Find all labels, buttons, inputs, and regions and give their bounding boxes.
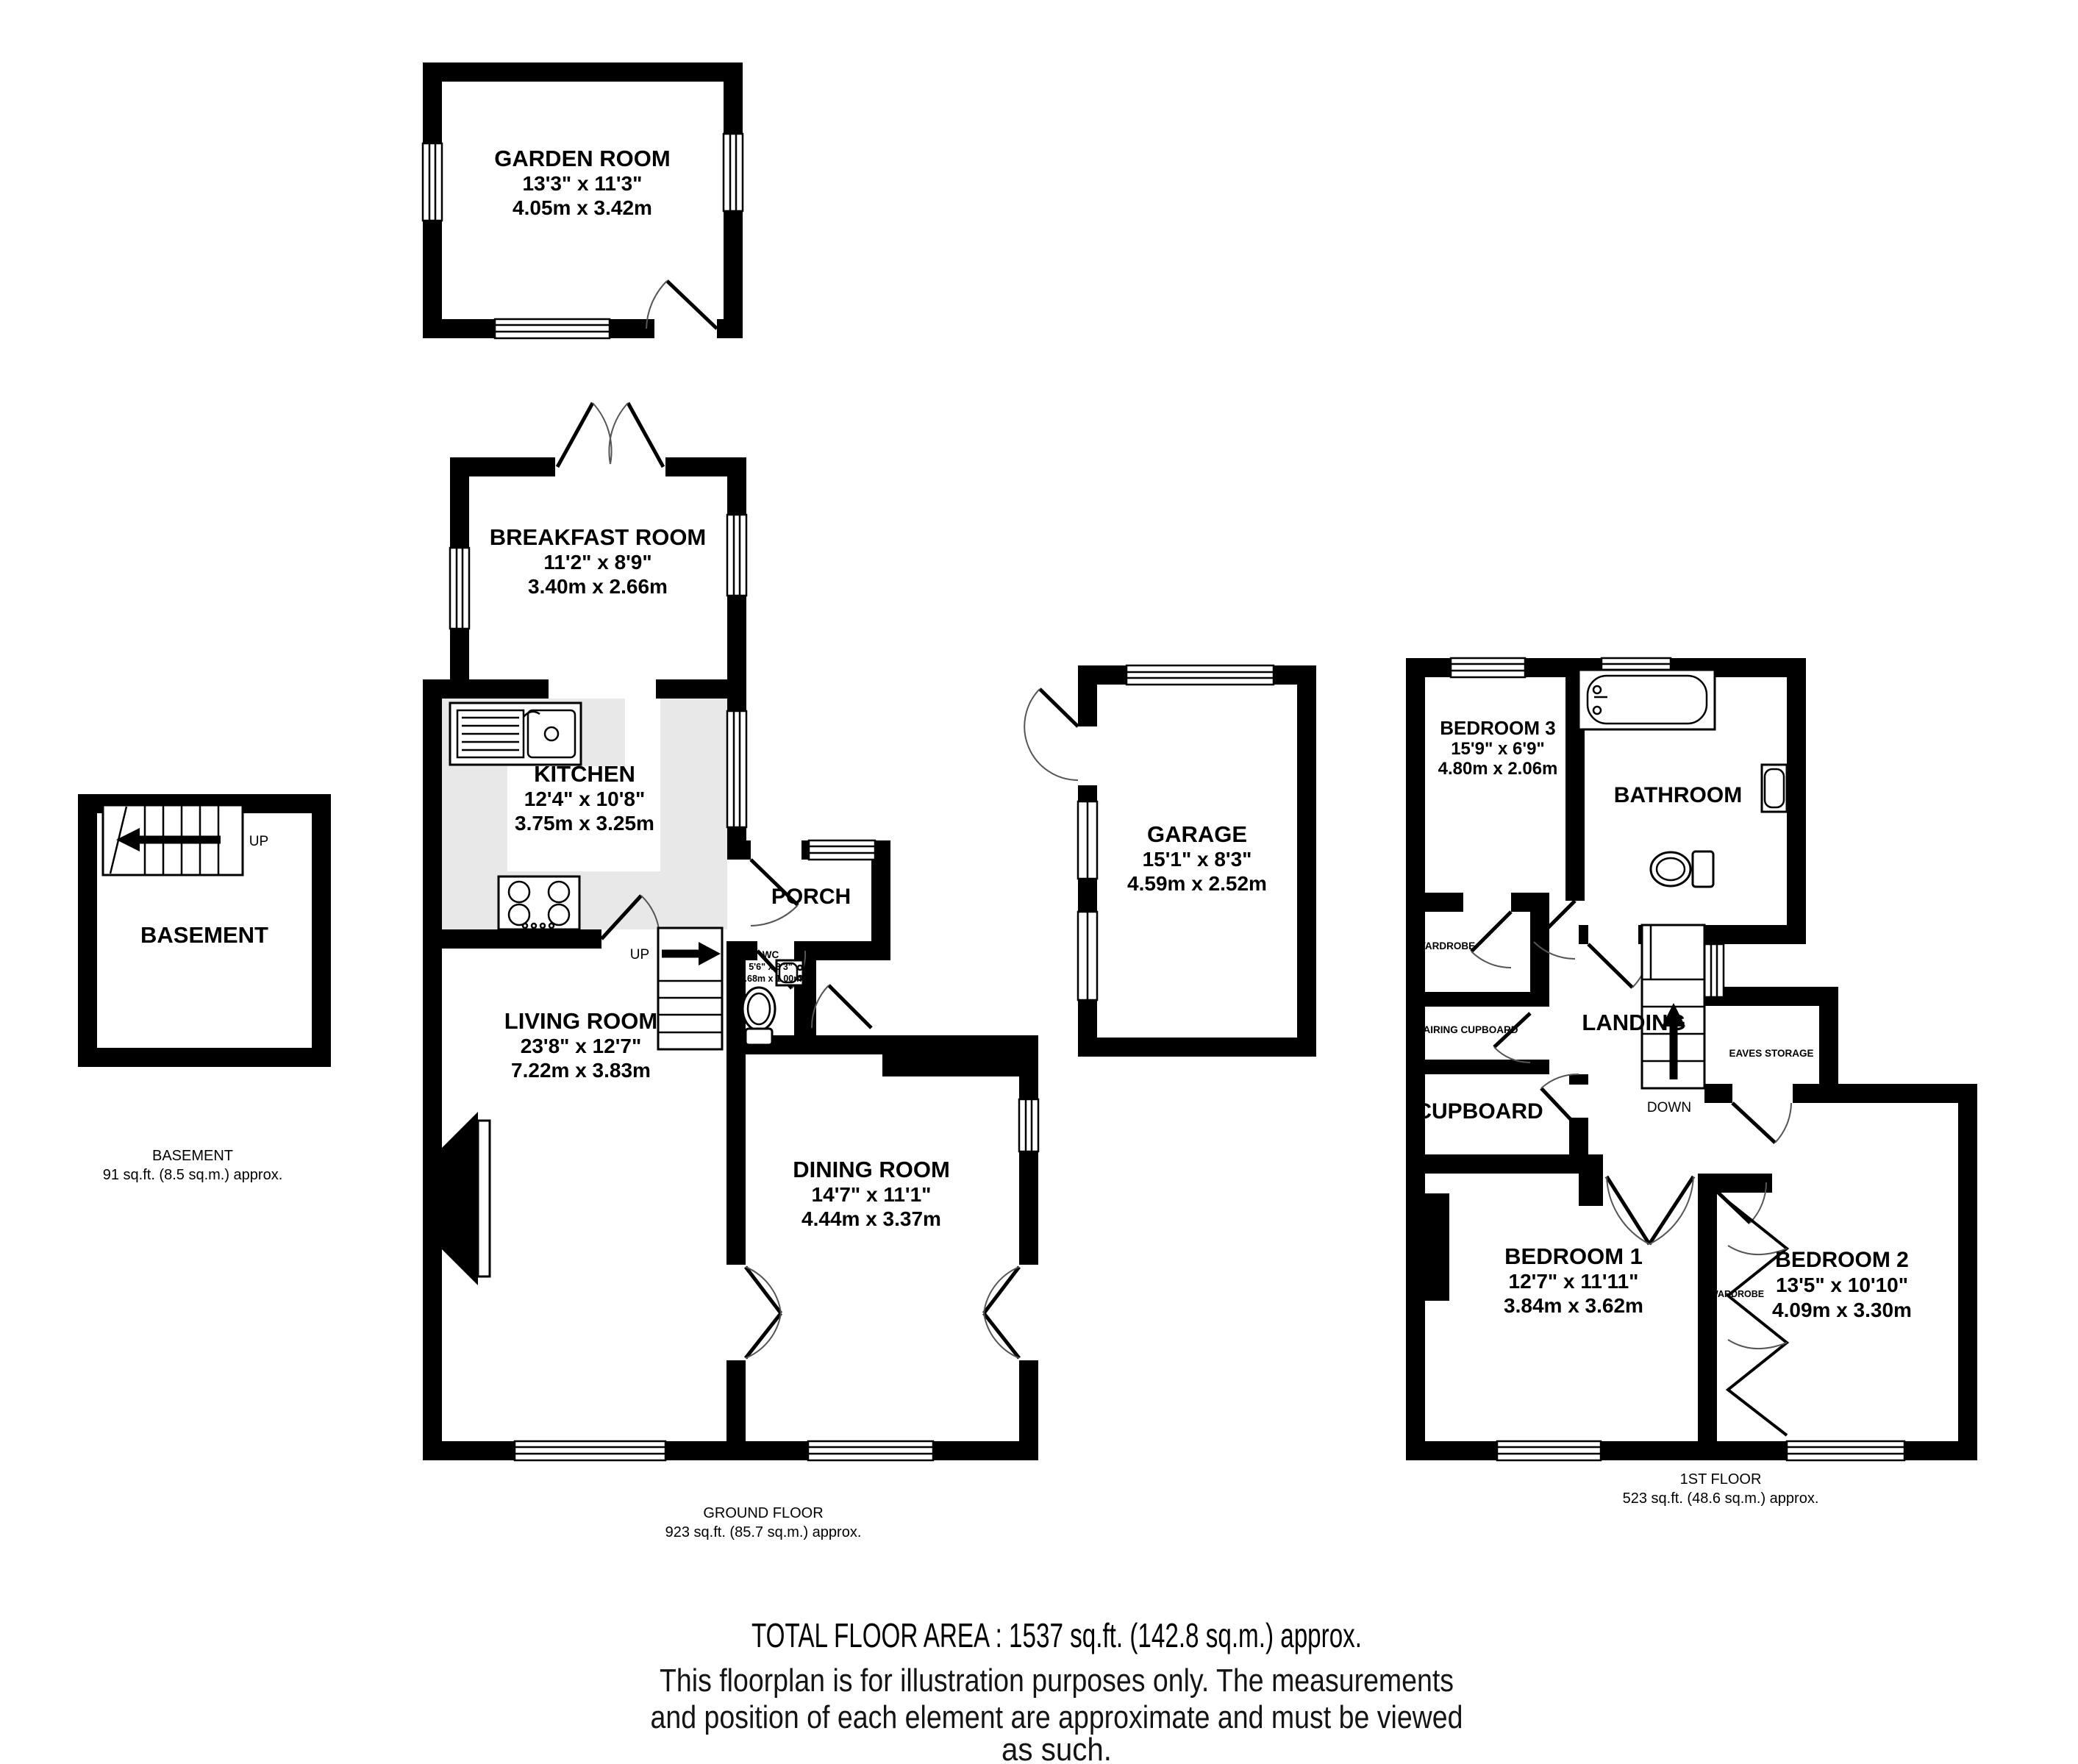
basement-caption-title: BASEMENT xyxy=(152,1148,233,1164)
basement-caption-area: 91 sq.ft. (8.5 sq.m.) approx. xyxy=(103,1167,283,1183)
window xyxy=(1451,658,1525,677)
wc-label: WC xyxy=(763,949,779,960)
wardrobe-door xyxy=(1471,912,1511,968)
eaves-storage-door xyxy=(1732,1103,1791,1143)
window xyxy=(809,840,875,860)
dining-room-imperial: 14'7" x 11'1" xyxy=(812,1183,932,1206)
bedroom2-metric: 4.09m x 3.30m xyxy=(1772,1299,1912,1321)
floorplan-drawing: GARDEN ROOM 13'3" x 11'3" 4.05m x 3.42m … xyxy=(0,0,2078,1764)
ground-floor: GARDEN ROOM 13'3" x 11'3" 4.05m x 3.42m … xyxy=(423,63,1038,1540)
airing-cupboard-door xyxy=(1494,1013,1530,1063)
bathroom-door xyxy=(1588,944,1650,988)
disclaimer-line3: as such. xyxy=(1001,1732,1112,1764)
first-stairs-down-label: DOWN xyxy=(1647,1100,1691,1115)
garden-room-label: GARDEN ROOM xyxy=(494,146,670,171)
wardrobe-bed3-label: WARDROBE xyxy=(1416,940,1475,951)
wardrobe-bed2-label: WARDROBE xyxy=(1710,1289,1764,1299)
bedroom3-label: BEDROOM 3 xyxy=(1440,717,1555,739)
basement-staircase xyxy=(103,805,243,875)
landing-label: LANDING xyxy=(1582,1010,1685,1035)
disclaimer-line1: This floorplan is for illustration purpo… xyxy=(660,1663,1454,1699)
dining-room-metric: 4.44m x 3.37m xyxy=(801,1207,941,1230)
floorplan-page: GARDEN ROOM 13'3" x 11'3" 4.05m x 3.42m … xyxy=(0,0,2078,1764)
garage-metric: 4.59m x 2.52m xyxy=(1127,872,1267,895)
cupboard-label: CUPBOARD xyxy=(1415,1099,1543,1124)
wc-imperial: 5'6" x 3'3" xyxy=(749,962,793,972)
first-floor-caption-area: 523 sq.ft. (48.6 sq.m.) approx. xyxy=(1623,1490,1819,1507)
wc-toilet xyxy=(743,988,775,1045)
bedroom3-imperial: 15'9" x 6'9" xyxy=(1451,739,1545,759)
first-floor: BEDROOM 3 15'9" x 6'9" 4.80m x 2.06m BAT… xyxy=(1406,658,1977,1507)
window xyxy=(1704,944,1724,997)
door xyxy=(646,281,717,329)
kitchen-hob xyxy=(499,876,579,929)
breakfast-room-imperial: 11'2" x 8'9" xyxy=(543,551,651,574)
first-floor-staircase xyxy=(1642,925,1704,1088)
kitchen-imperial: 12'4" x 10'8" xyxy=(524,788,645,810)
bedroom2-imperial: 13'5" x 10'10" xyxy=(1776,1274,1908,1296)
window xyxy=(450,548,469,629)
living-room-label: LIVING ROOM xyxy=(504,1008,657,1034)
double-door xyxy=(984,1267,1019,1358)
door xyxy=(812,985,871,1028)
bedroom2-label: BEDROOM 2 xyxy=(1775,1248,1909,1272)
kitchen-metric: 3.75m x 3.25m xyxy=(515,812,654,835)
disclaimer-line2: and position of each element are approxi… xyxy=(651,1699,1463,1735)
basement-stairs-up-label: UP xyxy=(249,834,268,849)
bath xyxy=(1579,670,1715,729)
basement: UP BASEMENT BASEMENT 91 sq.ft. (8.5 sq.m… xyxy=(78,794,331,1183)
footer: TOTAL FLOOR AREA : 1537 sq.ft. (142.8 sq… xyxy=(651,1616,1463,1764)
window xyxy=(724,134,743,211)
bedroom3-metric: 4.80m x 2.06m xyxy=(1438,759,1558,779)
window xyxy=(727,711,746,827)
basement-label: BASEMENT xyxy=(140,922,268,948)
porch-label: PORCH xyxy=(771,885,851,909)
living-room-imperial: 23'8" x 12'7" xyxy=(521,1035,641,1057)
door xyxy=(1024,689,1078,780)
ground-staircase xyxy=(658,928,722,1049)
living-room-metric: 7.22m x 3.83m xyxy=(511,1059,651,1082)
window xyxy=(423,143,442,221)
first-floor-caption-title: 1ST FLOOR xyxy=(1680,1471,1762,1488)
bathroom-toilet xyxy=(1651,851,1713,887)
bedroom1-metric: 3.84m x 3.62m xyxy=(1504,1294,1643,1317)
garden-room-imperial: 13'3" x 11'3" xyxy=(523,172,643,195)
dining-room-label: DINING ROOM xyxy=(793,1157,950,1182)
ground-floor-caption-area: 923 sq.ft. (85.7 sq.m.) approx. xyxy=(665,1524,862,1540)
french-doors xyxy=(557,403,663,467)
bedroom1-imperial: 12'7" x 11'11" xyxy=(1509,1270,1639,1293)
window xyxy=(495,319,610,338)
garage-label: GARAGE xyxy=(1147,821,1247,847)
garden-room-metric: 4.05m x 3.42m xyxy=(513,196,652,219)
eaves-storage-label: EAVES STORAGE xyxy=(1729,1048,1813,1059)
window xyxy=(1078,912,1097,1000)
breakfast-room-label: BREAKFAST ROOM xyxy=(490,524,707,550)
window xyxy=(808,1441,933,1460)
window xyxy=(727,515,746,596)
kitchen-label: KITCHEN xyxy=(534,761,635,787)
double-door xyxy=(746,1267,781,1358)
window xyxy=(1787,1441,1904,1460)
garage: GARAGE 15'1" x 8'3" 4.59m x 2.52m xyxy=(1024,665,1316,1057)
garage-imperial: 15'1" x 8'3" xyxy=(1143,848,1252,871)
ground-floor-caption-title: GROUND FLOOR xyxy=(703,1505,823,1521)
bathroom-label: BATHROOM xyxy=(1614,783,1742,807)
garage-door-panel xyxy=(1127,665,1274,685)
wc-metric: 1.68m x 1.00m xyxy=(740,974,802,984)
airing-cupboard-label: AIRING CUPBOARD xyxy=(1423,1024,1518,1035)
bedroom1-label: BEDROOM 1 xyxy=(1504,1243,1643,1269)
bedroom1-doors xyxy=(1607,1176,1693,1244)
total-floor-area: TOTAL FLOOR AREA : 1537 sq.ft. (142.8 sq… xyxy=(751,1616,1362,1654)
window xyxy=(1497,1441,1601,1460)
window xyxy=(1078,801,1097,879)
breakfast-room-metric: 3.40m x 2.66m xyxy=(528,575,668,598)
bathroom-sink xyxy=(1762,765,1787,812)
window xyxy=(1019,1099,1038,1151)
window xyxy=(515,1441,665,1460)
ground-stairs-up-label: UP xyxy=(630,947,649,963)
kitchen-sink xyxy=(450,703,581,765)
